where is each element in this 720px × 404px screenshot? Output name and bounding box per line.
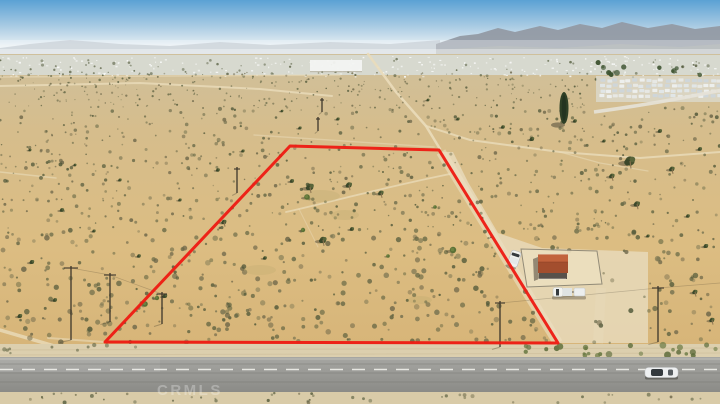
shed-compound bbox=[521, 249, 602, 287]
dirt-shoulder bbox=[0, 342, 720, 359]
aerial-photo: CRMLS bbox=[0, 0, 720, 404]
paved-road bbox=[0, 357, 720, 404]
shed-building bbox=[533, 254, 568, 281]
aerial-photo-canvas bbox=[0, 0, 720, 404]
pickup-truck-with-trailer bbox=[552, 288, 586, 300]
distant-warehouse bbox=[310, 60, 362, 71]
car-on-road bbox=[645, 368, 678, 380]
